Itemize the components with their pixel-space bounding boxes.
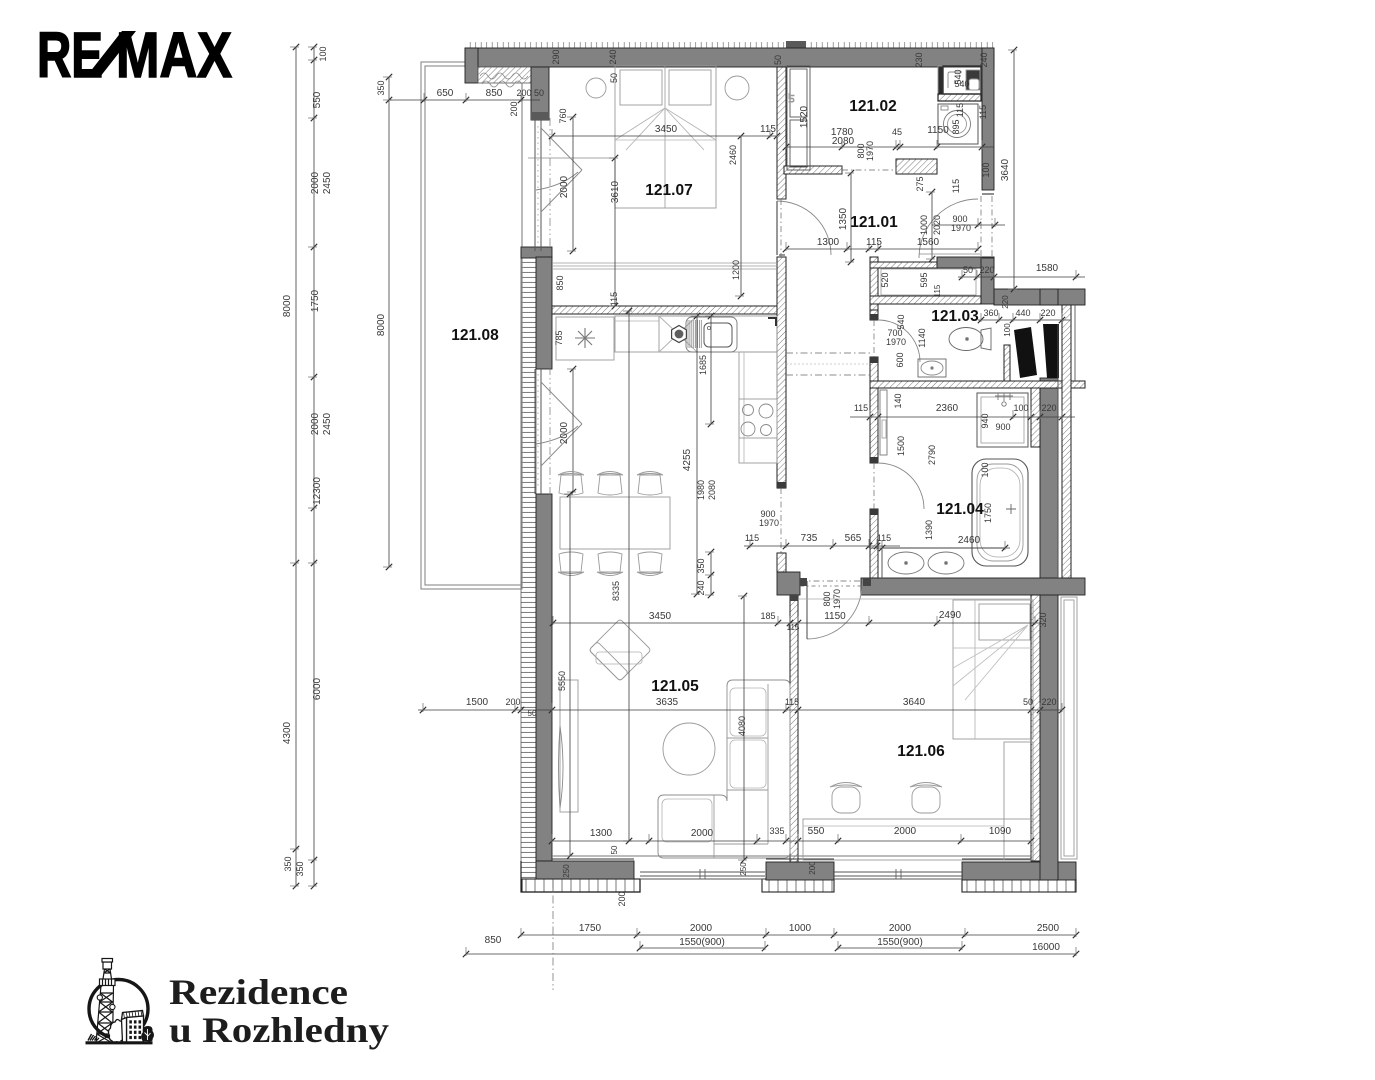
svg-text:185: 185 [760,611,775,621]
svg-text:8000: 8000 [282,294,293,317]
svg-text:440: 440 [1015,308,1030,318]
svg-text:200: 200 [516,88,531,98]
svg-text:200: 200 [617,891,627,906]
svg-text:u Rozhledny: u Rozhledny [169,1010,389,1050]
svg-text:2000: 2000 [559,421,570,444]
svg-text:2790: 2790 [927,445,937,465]
svg-text:6000: 6000 [312,677,323,700]
svg-text:2500: 2500 [1037,923,1060,934]
svg-text:1090: 1090 [989,826,1012,837]
svg-text:1580: 1580 [1036,263,1059,274]
svg-text:2000: 2000 [559,175,570,198]
svg-text:3640: 3640 [1000,158,1011,181]
svg-text:250: 250 [739,862,748,876]
svg-text:1685: 1685 [698,355,708,375]
svg-text:115: 115 [933,284,942,297]
svg-text:2020: 2020 [932,215,942,235]
svg-text:3635: 3635 [656,697,679,708]
svg-text:5550: 5550 [557,671,567,691]
svg-text:1500: 1500 [896,436,906,456]
svg-text:2000: 2000 [691,828,714,839]
svg-text:121.05: 121.05 [651,678,699,695]
svg-text:100: 100 [318,46,328,61]
svg-text:2450: 2450 [322,412,333,435]
svg-text:115: 115 [609,292,619,306]
svg-text:230: 230 [914,52,924,67]
svg-text:1970: 1970 [886,337,906,347]
svg-text:121.01: 121.01 [850,214,898,231]
svg-text:1750: 1750 [310,289,321,312]
svg-text:1150: 1150 [824,611,846,622]
svg-text:1350: 1350 [838,207,849,230]
svg-text:650: 650 [437,88,454,99]
svg-text:565: 565 [845,533,862,544]
svg-text:121.08: 121.08 [451,327,499,344]
svg-text:121.02: 121.02 [849,98,896,115]
svg-text:UT: UT [789,93,796,103]
svg-text:8000: 8000 [376,313,387,336]
svg-text:1970: 1970 [832,589,842,609]
svg-text:12300: 12300 [312,477,323,505]
svg-text:45: 45 [892,127,902,137]
svg-text:115: 115 [877,533,891,543]
svg-text:3640: 3640 [903,697,926,708]
svg-text:2490: 2490 [939,610,962,621]
svg-text:2460: 2460 [958,535,981,546]
svg-text:320: 320 [1038,612,1048,627]
svg-text:1200: 1200 [731,260,741,280]
svg-text:3610: 3610 [610,180,621,203]
svg-text:115: 115 [951,179,961,193]
svg-text:115: 115 [955,103,965,117]
svg-text:1300: 1300 [817,237,840,248]
svg-text:335: 335 [769,826,784,836]
svg-text:1000: 1000 [789,923,812,934]
svg-text:900: 900 [995,422,1010,432]
svg-text:1500: 1500 [466,697,489,708]
svg-text:1300: 1300 [590,828,613,839]
svg-text:16000: 16000 [1032,942,1060,953]
svg-text:600: 600 [895,352,905,367]
svg-text:220: 220 [1001,295,1010,309]
svg-text:121.07: 121.07 [645,182,692,199]
svg-text:240: 240 [608,49,618,64]
svg-text:2460: 2460 [728,145,738,165]
svg-text:115: 115 [785,697,799,707]
svg-text:200: 200 [505,697,520,707]
svg-text:350: 350 [376,80,386,95]
svg-text:550: 550 [808,826,825,837]
svg-text:2450: 2450 [322,171,333,194]
svg-text:MAX: MAX [116,19,232,91]
svg-text:2080: 2080 [707,480,717,500]
svg-text:4080: 4080 [737,716,747,736]
svg-text:4255: 4255 [682,448,693,471]
svg-text:850: 850 [486,88,503,99]
svg-text:50: 50 [1023,697,1033,707]
svg-text:1750: 1750 [983,503,993,523]
svg-text:100: 100 [981,162,991,177]
svg-text:1390: 1390 [924,520,934,540]
svg-text:940: 940 [980,413,990,428]
svg-text:735: 735 [801,533,818,544]
svg-text:2000: 2000 [310,171,321,194]
svg-text:1560: 1560 [917,237,940,248]
svg-text:220: 220 [979,265,994,275]
svg-text:240: 240 [696,580,706,595]
svg-text:275: 275 [915,176,925,191]
svg-text:115: 115 [760,124,776,135]
svg-text:50: 50 [609,73,619,83]
svg-text:1000: 1000 [919,215,929,235]
svg-text:220: 220 [1041,697,1056,707]
svg-text:250: 250 [562,864,571,878]
svg-text:50: 50 [963,265,973,275]
svg-text:115: 115 [787,623,800,632]
svg-text:550: 550 [312,91,323,108]
svg-text:350: 350 [295,861,305,876]
svg-text:760: 760 [558,108,568,123]
svg-text:1550(900): 1550(900) [877,937,923,948]
svg-text:121.06: 121.06 [897,743,945,760]
svg-text:850: 850 [485,935,502,946]
svg-text:100: 100 [1013,403,1028,413]
svg-text:540: 540 [896,314,906,329]
svg-text:2000: 2000 [690,923,713,934]
svg-text:Rezidence: Rezidence [169,972,348,1012]
svg-text:350: 350 [283,856,293,871]
svg-text:1980: 1980 [696,480,706,500]
svg-text:360: 360 [983,308,998,318]
svg-text:1550(900): 1550(900) [679,937,725,948]
svg-text:595: 595 [919,272,929,287]
svg-text:50: 50 [773,55,783,65]
svg-text:200: 200 [509,101,519,116]
svg-text:1520: 1520 [799,105,810,128]
svg-text:220: 220 [1040,308,1055,318]
svg-text:220: 220 [1041,403,1056,413]
svg-text:50: 50 [528,709,537,718]
svg-text:2000: 2000 [310,412,321,435]
svg-text:895: 895 [951,119,961,134]
svg-text:350: 350 [696,558,706,573]
svg-text:115: 115 [866,237,882,248]
svg-text:3450: 3450 [649,611,672,622]
svg-text:1970: 1970 [759,518,779,528]
svg-text:4300: 4300 [282,721,293,744]
svg-text:115: 115 [745,533,759,543]
svg-text:2000: 2000 [894,826,917,837]
svg-text:115: 115 [854,403,868,413]
svg-text:850: 850 [555,275,565,290]
svg-text:1150: 1150 [927,125,949,136]
svg-text:121.04: 121.04 [936,501,984,518]
svg-text:290: 290 [551,49,561,64]
svg-text:100: 100 [1003,323,1012,337]
svg-text:785: 785 [554,330,564,345]
svg-text:200: 200 [808,861,817,875]
svg-text:1970: 1970 [865,141,875,161]
svg-text:3450: 3450 [655,124,678,135]
svg-text:520: 520 [880,272,890,287]
svg-text:800: 800 [822,591,832,606]
svg-text:8335: 8335 [611,581,621,601]
svg-text:50: 50 [610,845,619,854]
svg-text:540: 540 [954,79,969,89]
svg-text:RE: RE [37,19,103,91]
svg-text:1750: 1750 [579,923,602,934]
svg-text:100: 100 [980,462,990,477]
svg-text:50: 50 [534,88,544,98]
svg-text:121.03: 121.03 [931,308,979,325]
svg-text:1140: 1140 [917,328,927,347]
svg-text:140: 140 [893,393,903,408]
svg-text:2360: 2360 [936,403,959,414]
svg-text:1970: 1970 [951,223,971,233]
svg-text:115: 115 [978,105,988,119]
svg-text:2000: 2000 [889,923,912,934]
svg-text:2080: 2080 [832,136,855,147]
svg-text:240: 240 [979,52,989,67]
